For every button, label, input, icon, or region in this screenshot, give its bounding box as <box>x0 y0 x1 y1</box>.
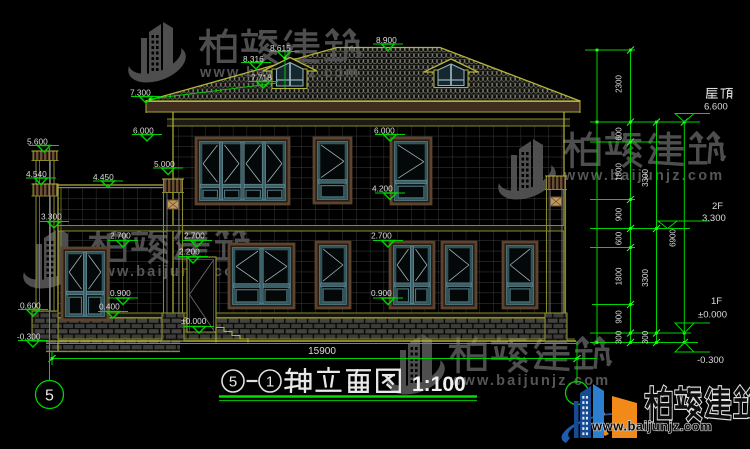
svg-text:0.900: 0.900 <box>371 288 392 298</box>
svg-text:1800: 1800 <box>615 267 624 285</box>
svg-text:5.600: 5.600 <box>27 137 48 147</box>
svg-text:2.200: 2.200 <box>179 247 200 257</box>
svg-text:7.718: 7.718 <box>251 73 272 83</box>
svg-text:15900: 15900 <box>308 346 336 357</box>
svg-text:1F: 1F <box>711 296 722 307</box>
svg-text:0.400: 0.400 <box>99 302 120 312</box>
svg-text:www.baijunjz.com: www.baijunjz.com <box>591 419 712 434</box>
svg-text:300: 300 <box>615 330 624 344</box>
svg-text:-0.300: -0.300 <box>17 332 41 342</box>
svg-text:www.baijunjz.com: www.baijunjz.com <box>89 264 250 280</box>
svg-text:300: 300 <box>641 330 650 344</box>
svg-text:1: 1 <box>266 374 274 391</box>
svg-text:0.600: 0.600 <box>20 301 41 311</box>
svg-text:900: 900 <box>615 310 624 324</box>
svg-text:6900: 6900 <box>669 229 678 247</box>
svg-text:3300: 3300 <box>641 269 650 287</box>
svg-text:2300: 2300 <box>615 75 624 93</box>
svg-text:4.450: 4.450 <box>93 172 114 182</box>
svg-text:2.700: 2.700 <box>371 231 392 241</box>
svg-text:8.316: 8.316 <box>243 54 264 64</box>
svg-text:±0.000: ±0.000 <box>698 310 727 321</box>
svg-text:6.600: 6.600 <box>704 102 728 113</box>
svg-text:±0.000: ±0.000 <box>181 316 207 326</box>
svg-text:6.000: 6.000 <box>133 126 154 136</box>
svg-text:4.200: 4.200 <box>372 184 393 194</box>
svg-text:8.615: 8.615 <box>270 43 291 53</box>
svg-text:3300: 3300 <box>641 169 650 187</box>
svg-text:900: 900 <box>615 207 624 221</box>
svg-text:5.000: 5.000 <box>154 159 175 169</box>
svg-text:5: 5 <box>229 374 237 391</box>
svg-text:3.300: 3.300 <box>41 212 62 222</box>
svg-text:5: 5 <box>45 388 54 405</box>
svg-text:2.700: 2.700 <box>110 231 131 241</box>
svg-text:1:100: 1:100 <box>412 373 466 396</box>
svg-text:6.000: 6.000 <box>374 126 395 136</box>
svg-text:600: 600 <box>615 127 624 141</box>
svg-text:2F: 2F <box>712 201 723 212</box>
svg-text:2.700: 2.700 <box>184 231 205 241</box>
svg-text:8.900: 8.900 <box>376 35 397 45</box>
svg-text:0.900: 0.900 <box>110 288 131 298</box>
svg-text:600: 600 <box>615 231 624 245</box>
svg-text:3.300: 3.300 <box>702 213 726 224</box>
svg-text:4.540: 4.540 <box>26 169 47 179</box>
svg-text:7.300: 7.300 <box>130 88 151 98</box>
svg-text:-0.300: -0.300 <box>697 355 724 366</box>
svg-text:1800: 1800 <box>615 163 624 181</box>
